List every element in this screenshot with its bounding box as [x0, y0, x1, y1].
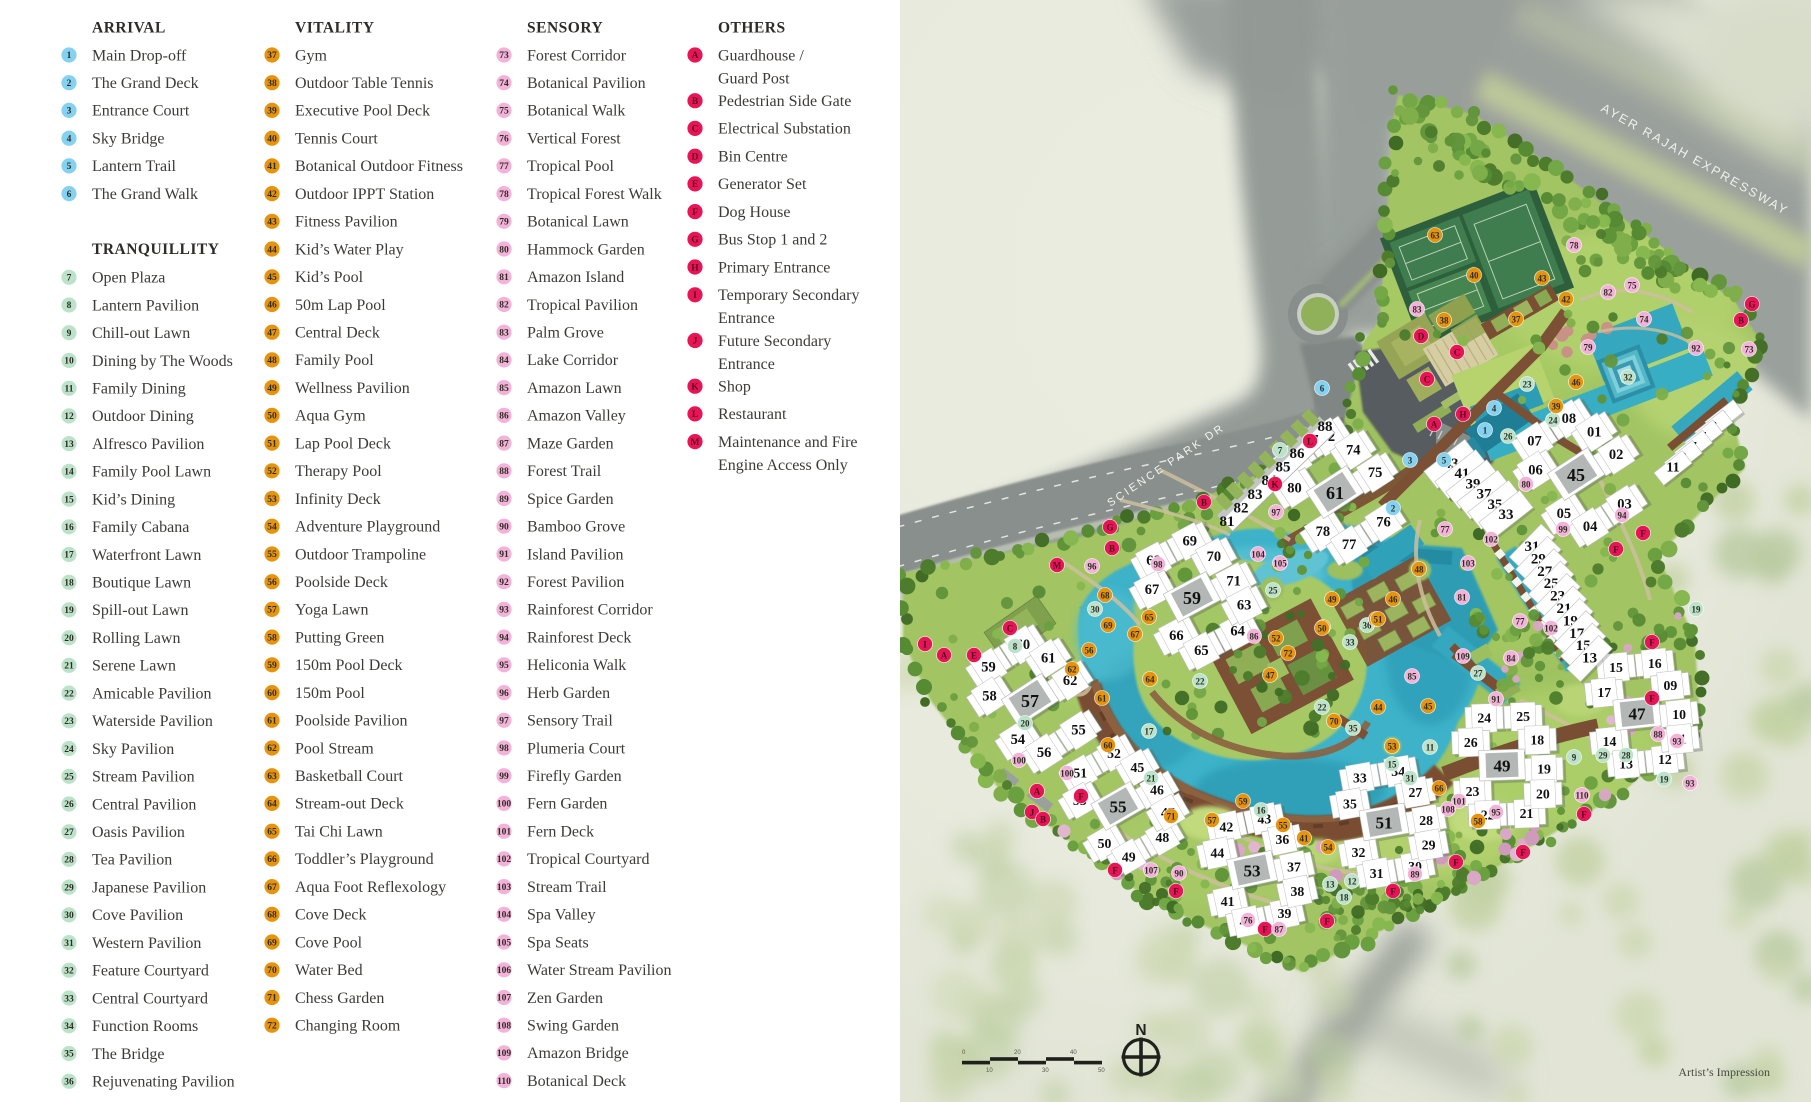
svg-text:Sensory Trail: Sensory Trail — [527, 713, 613, 730]
svg-text:53: 53 — [267, 495, 277, 505]
svg-text:G: G — [691, 236, 699, 246]
svg-text:10: 10 — [64, 357, 74, 367]
svg-text:65: 65 — [1194, 643, 1209, 659]
svg-text:Aqua Foot Reflexology: Aqua Foot Reflexology — [295, 879, 446, 896]
svg-text:A: A — [941, 651, 948, 661]
svg-text:94: 94 — [499, 633, 509, 643]
svg-text:68: 68 — [1101, 591, 1111, 601]
svg-text:92: 92 — [499, 578, 509, 588]
svg-text:ARRIVAL: ARRIVAL — [92, 20, 166, 37]
svg-text:47: 47 — [267, 328, 277, 338]
svg-text:29: 29 — [1599, 751, 1609, 761]
svg-text:19: 19 — [1660, 775, 1670, 785]
svg-text:Function Rooms: Function Rooms — [92, 1018, 198, 1035]
svg-text:47: 47 — [1628, 704, 1646, 723]
svg-text:17: 17 — [1145, 727, 1155, 737]
svg-text:Botanical Pavilion: Botanical Pavilion — [527, 75, 646, 92]
svg-text:Changing Room: Changing Room — [295, 1018, 401, 1035]
svg-text:Future Secondary: Future Secondary — [718, 333, 831, 350]
svg-text:81: 81 — [499, 273, 509, 283]
svg-text:B: B — [1040, 815, 1046, 825]
svg-text:6: 6 — [67, 190, 72, 200]
svg-text:63: 63 — [1237, 598, 1252, 614]
svg-text:21: 21 — [1520, 806, 1534, 821]
svg-text:40: 40 — [267, 134, 277, 144]
svg-text:61: 61 — [267, 717, 277, 727]
svg-text:J: J — [693, 337, 698, 347]
svg-text:109: 109 — [497, 1049, 512, 1059]
svg-text:59: 59 — [1239, 797, 1249, 807]
svg-text:Tropical Pavilion: Tropical Pavilion — [527, 297, 638, 314]
svg-text:C: C — [692, 125, 699, 135]
svg-text:33: 33 — [1353, 771, 1367, 786]
svg-text:61: 61 — [1326, 483, 1344, 503]
svg-text:20: 20 — [1014, 1050, 1021, 1056]
svg-text:37: 37 — [267, 51, 277, 61]
svg-text:Pedestrian Side Gate: Pedestrian Side Gate — [718, 93, 851, 110]
svg-text:Kid’s Water Play: Kid’s Water Play — [295, 241, 404, 258]
svg-text:Putting Green: Putting Green — [295, 629, 384, 646]
svg-text:J: J — [1030, 808, 1035, 818]
svg-text:56: 56 — [1085, 646, 1095, 656]
svg-text:81: 81 — [1458, 593, 1468, 603]
svg-text:11: 11 — [1426, 743, 1435, 753]
svg-text:84: 84 — [499, 356, 509, 366]
svg-text:29: 29 — [1422, 838, 1436, 853]
svg-text:Hammock Garden: Hammock Garden — [527, 241, 645, 258]
svg-text:1: 1 — [1483, 426, 1488, 436]
svg-text:I: I — [923, 640, 927, 650]
svg-text:43: 43 — [1538, 274, 1548, 284]
svg-text:95: 95 — [1492, 808, 1502, 818]
svg-text:B: B — [1738, 316, 1744, 326]
svg-text:69: 69 — [1182, 534, 1197, 550]
svg-text:71: 71 — [1226, 574, 1241, 590]
svg-text:55: 55 — [1279, 821, 1289, 831]
svg-text:41: 41 — [267, 162, 277, 172]
svg-text:Chill-out Lawn: Chill-out Lawn — [92, 325, 190, 342]
svg-text:55: 55 — [1071, 723, 1086, 739]
svg-text:Firefly Garden: Firefly Garden — [527, 768, 622, 785]
svg-text:Cove Pool: Cove Pool — [295, 934, 363, 951]
svg-text:11: 11 — [1666, 461, 1679, 476]
svg-text:100: 100 — [1012, 756, 1026, 766]
svg-text:32: 32 — [1352, 845, 1366, 860]
svg-text:Dining by The Woods: Dining by The Woods — [92, 353, 233, 370]
svg-text:Family Pool: Family Pool — [295, 352, 374, 369]
svg-text:15: 15 — [64, 495, 74, 505]
svg-text:8: 8 — [1013, 642, 1018, 652]
svg-text:Cove Deck: Cove Deck — [295, 907, 367, 924]
svg-text:53: 53 — [1388, 742, 1398, 752]
svg-text:39: 39 — [267, 107, 277, 117]
svg-text:G: G — [1106, 523, 1113, 533]
svg-text:102: 102 — [1484, 535, 1498, 545]
svg-text:61: 61 — [1041, 650, 1056, 666]
svg-text:Yoga Lawn: Yoga Lawn — [295, 602, 368, 619]
svg-text:Toddler’s Playground: Toddler’s Playground — [295, 851, 434, 868]
svg-text:18: 18 — [1530, 733, 1544, 748]
svg-text:Guardhouse /: Guardhouse / — [718, 47, 804, 64]
svg-text:104: 104 — [1251, 550, 1265, 560]
svg-text:109: 109 — [1456, 652, 1470, 662]
svg-text:Cove Pavilion: Cove Pavilion — [92, 907, 183, 924]
svg-text:42: 42 — [1562, 295, 1572, 305]
svg-text:Therapy Pool: Therapy Pool — [295, 463, 382, 480]
svg-text:57: 57 — [1021, 691, 1039, 711]
svg-text:93: 93 — [499, 606, 509, 616]
svg-text:17: 17 — [64, 551, 74, 561]
svg-text:43: 43 — [267, 218, 277, 228]
svg-text:75: 75 — [499, 107, 509, 117]
svg-text:64: 64 — [267, 800, 277, 810]
svg-text:05: 05 — [1557, 506, 1572, 522]
svg-text:102: 102 — [1544, 624, 1558, 634]
svg-text:100: 100 — [497, 800, 512, 810]
svg-text:58: 58 — [982, 688, 997, 704]
svg-text:A: A — [1431, 420, 1438, 430]
svg-text:27: 27 — [1409, 785, 1423, 800]
svg-text:65: 65 — [267, 827, 277, 837]
svg-text:Bus Stop 1 and 2: Bus Stop 1 and 2 — [718, 232, 827, 249]
svg-text:107: 107 — [1144, 866, 1158, 876]
svg-text:59: 59 — [1183, 588, 1201, 608]
svg-text:Tai Chi Lawn: Tai Chi Lawn — [295, 824, 383, 841]
svg-text:96: 96 — [1088, 562, 1098, 572]
svg-text:F: F — [692, 208, 698, 218]
svg-text:Amazon Lawn: Amazon Lawn — [527, 380, 622, 397]
svg-text:Japanese Pavilion: Japanese Pavilion — [92, 879, 206, 896]
svg-text:Poolside Pavilion: Poolside Pavilion — [295, 713, 407, 730]
svg-text:Forest Corridor: Forest Corridor — [527, 47, 627, 64]
svg-text:C: C — [1454, 348, 1461, 358]
svg-text:34: 34 — [64, 1022, 74, 1032]
svg-text:Aqua Gym: Aqua Gym — [295, 408, 366, 425]
svg-text:75: 75 — [1368, 465, 1383, 481]
svg-text:102: 102 — [497, 855, 512, 865]
svg-text:84: 84 — [1507, 654, 1517, 664]
svg-text:Dog House: Dog House — [718, 204, 790, 221]
svg-text:G: G — [1748, 300, 1755, 310]
svg-text:Tropical Courtyard: Tropical Courtyard — [527, 851, 650, 868]
svg-text:64: 64 — [1230, 624, 1245, 640]
svg-text:57: 57 — [267, 606, 277, 616]
svg-text:The Grand Deck: The Grand Deck — [92, 75, 199, 92]
svg-text:17: 17 — [1597, 685, 1611, 700]
svg-text:21: 21 — [64, 662, 74, 672]
svg-text:71: 71 — [1167, 812, 1177, 822]
svg-text:51: 51 — [1374, 615, 1384, 625]
svg-text:85: 85 — [499, 384, 509, 394]
svg-text:Generator Set: Generator Set — [718, 176, 807, 193]
svg-text:H: H — [1459, 410, 1466, 420]
svg-text:89: 89 — [1411, 870, 1421, 880]
svg-text:85: 85 — [1408, 672, 1418, 682]
svg-text:93: 93 — [1686, 779, 1696, 789]
svg-text:M: M — [691, 438, 700, 448]
svg-text:23: 23 — [1466, 784, 1480, 799]
svg-text:35: 35 — [1349, 724, 1359, 734]
svg-text:Executive Pool Deck: Executive Pool Deck — [295, 103, 430, 120]
svg-text:49: 49 — [267, 384, 277, 394]
svg-text:37: 37 — [1287, 859, 1301, 874]
svg-text:Kid’s Dining: Kid’s Dining — [92, 491, 175, 508]
svg-text:2: 2 — [67, 79, 72, 89]
svg-text:83: 83 — [1248, 487, 1263, 503]
svg-text:97: 97 — [1272, 508, 1282, 518]
svg-text:Gym: Gym — [295, 47, 328, 64]
svg-text:15: 15 — [1609, 660, 1623, 675]
svg-text:27: 27 — [64, 828, 74, 838]
svg-text:81: 81 — [1220, 514, 1235, 530]
svg-text:16: 16 — [64, 523, 74, 533]
svg-text:94: 94 — [1618, 511, 1628, 521]
svg-text:74: 74 — [1346, 442, 1361, 458]
svg-text:Rainforest Deck: Rainforest Deck — [527, 629, 631, 646]
svg-text:E: E — [692, 180, 698, 190]
svg-text:30: 30 — [1091, 605, 1101, 615]
svg-text:Boutique Lawn: Boutique Lawn — [92, 575, 191, 592]
svg-text:5: 5 — [67, 162, 72, 172]
svg-text:Stream Trail: Stream Trail — [527, 879, 607, 896]
svg-text:92: 92 — [1692, 344, 1702, 354]
svg-text:45: 45 — [1424, 702, 1434, 712]
svg-text:72: 72 — [267, 1021, 277, 1031]
svg-text:16: 16 — [1648, 656, 1662, 671]
svg-text:44: 44 — [1374, 703, 1384, 713]
svg-text:25: 25 — [1516, 709, 1530, 724]
svg-text:H: H — [691, 263, 699, 273]
svg-text:Forest Trail: Forest Trail — [527, 463, 602, 480]
svg-text:4: 4 — [1492, 404, 1497, 414]
svg-text:Outdoor IPPT Station: Outdoor IPPT Station — [295, 186, 434, 203]
svg-text:82: 82 — [499, 301, 509, 311]
svg-text:9: 9 — [1572, 753, 1577, 763]
svg-text:28: 28 — [1419, 813, 1433, 828]
svg-text:105: 105 — [1273, 559, 1287, 569]
svg-text:95: 95 — [499, 661, 509, 671]
svg-text:83: 83 — [499, 328, 509, 338]
svg-text:38: 38 — [1290, 884, 1304, 899]
svg-text:9: 9 — [67, 329, 72, 339]
svg-text:103: 103 — [497, 883, 512, 893]
svg-text:Spa Seats: Spa Seats — [527, 934, 589, 951]
svg-text:30: 30 — [1042, 1068, 1049, 1074]
svg-text:F: F — [1453, 858, 1459, 868]
svg-text:23: 23 — [1523, 380, 1533, 390]
svg-text:86: 86 — [499, 412, 509, 422]
svg-text:09: 09 — [1664, 678, 1678, 693]
svg-text:72: 72 — [1284, 649, 1294, 659]
svg-text:66: 66 — [1169, 628, 1184, 644]
svg-text:24: 24 — [64, 745, 74, 755]
svg-text:25: 25 — [64, 773, 74, 783]
svg-text:79: 79 — [1584, 343, 1594, 353]
svg-text:20: 20 — [64, 634, 74, 644]
svg-text:78: 78 — [1316, 524, 1331, 540]
svg-text:F: F — [1262, 925, 1268, 935]
svg-text:F: F — [1649, 694, 1655, 704]
svg-text:80: 80 — [1522, 480, 1532, 490]
svg-text:47: 47 — [1266, 671, 1276, 681]
svg-text:89: 89 — [499, 495, 509, 505]
svg-text:68: 68 — [267, 911, 277, 921]
svg-text:56: 56 — [1037, 745, 1052, 761]
svg-text:Amazon Valley: Amazon Valley — [527, 408, 626, 425]
svg-text:59: 59 — [981, 659, 996, 675]
svg-text:110: 110 — [1575, 791, 1589, 801]
svg-text:B: B — [1109, 544, 1115, 554]
svg-text:Plumeria Court: Plumeria Court — [527, 740, 626, 757]
svg-text:51: 51 — [1375, 813, 1392, 832]
svg-text:106: 106 — [497, 966, 512, 976]
svg-text:Tropical Forest Walk: Tropical Forest Walk — [527, 186, 662, 203]
svg-text:SENSORY: SENSORY — [527, 20, 603, 37]
svg-text:15: 15 — [1388, 760, 1398, 770]
svg-text:Electrical Substation: Electrical Substation — [718, 121, 851, 138]
svg-text:65: 65 — [1145, 613, 1155, 623]
svg-text:12: 12 — [1348, 877, 1358, 887]
svg-text:F: F — [1112, 866, 1118, 876]
svg-text:Outdoor Dining: Outdoor Dining — [92, 408, 194, 425]
svg-text:7: 7 — [1278, 446, 1283, 456]
svg-text:Amicable Pavilion: Amicable Pavilion — [92, 685, 212, 702]
svg-text:49: 49 — [1122, 849, 1136, 864]
svg-text:110: 110 — [497, 1077, 511, 1087]
svg-text:25: 25 — [1269, 586, 1279, 596]
svg-text:97: 97 — [499, 717, 509, 727]
svg-text:Water Stream Pavilion: Water Stream Pavilion — [527, 962, 671, 979]
svg-text:18: 18 — [64, 579, 74, 589]
svg-text:104: 104 — [497, 911, 512, 921]
svg-text:C: C — [1424, 375, 1431, 385]
svg-text:22: 22 — [1196, 677, 1206, 687]
svg-text:60: 60 — [1104, 741, 1114, 751]
svg-text:85: 85 — [1276, 460, 1291, 476]
svg-text:61: 61 — [1098, 694, 1108, 704]
svg-text:58: 58 — [1474, 817, 1484, 827]
svg-text:06: 06 — [1528, 462, 1543, 478]
svg-text:L: L — [1307, 437, 1313, 447]
svg-text:8: 8 — [67, 301, 72, 311]
svg-text:74: 74 — [1640, 315, 1650, 325]
svg-text:23: 23 — [64, 717, 74, 727]
svg-text:Stream Pavilion: Stream Pavilion — [92, 769, 195, 786]
svg-text:Lantern Pavilion: Lantern Pavilion — [92, 297, 199, 314]
svg-text:Lap Pool Deck: Lap Pool Deck — [295, 435, 391, 452]
svg-text:01: 01 — [1587, 424, 1602, 440]
svg-text:Fern Deck: Fern Deck — [527, 824, 594, 841]
svg-text:91: 91 — [1492, 695, 1502, 705]
svg-text:Temporary Secondary: Temporary Secondary — [718, 287, 860, 304]
svg-text:50: 50 — [1318, 624, 1328, 634]
svg-text:10: 10 — [986, 1068, 993, 1074]
svg-text:22: 22 — [64, 689, 74, 699]
svg-text:Outdoor Table Tennis: Outdoor Table Tennis — [295, 75, 433, 92]
svg-text:46: 46 — [1389, 595, 1399, 605]
svg-text:51: 51 — [1073, 765, 1087, 780]
svg-text:Botanical Deck: Botanical Deck — [527, 1073, 626, 1090]
svg-text:Waterfront Lawn: Waterfront Lawn — [92, 547, 201, 564]
svg-text:Serene Lawn: Serene Lawn — [92, 658, 176, 675]
svg-text:77: 77 — [1516, 617, 1526, 627]
svg-text:103: 103 — [1461, 559, 1475, 569]
svg-text:3: 3 — [1408, 456, 1413, 466]
svg-text:Family Pool Lawn: Family Pool Lawn — [92, 464, 211, 481]
svg-text:50: 50 — [1098, 1068, 1105, 1074]
svg-text:Waterside Pavilion: Waterside Pavilion — [92, 713, 213, 730]
svg-text:62: 62 — [1068, 665, 1078, 675]
svg-text:14: 14 — [64, 468, 74, 478]
svg-text:63: 63 — [267, 772, 277, 782]
svg-text:Artist’s Impression: Artist’s Impression — [1678, 1065, 1770, 1079]
svg-text:82: 82 — [1604, 288, 1614, 298]
svg-text:99: 99 — [499, 772, 509, 782]
svg-text:Island Pavilion: Island Pavilion — [527, 546, 623, 563]
svg-text:D: D — [692, 152, 699, 162]
svg-text:C: C — [1007, 624, 1014, 634]
svg-text:108: 108 — [497, 1021, 512, 1031]
svg-text:Tea Pavilion: Tea Pavilion — [92, 852, 172, 869]
svg-text:Family Dining: Family Dining — [92, 381, 186, 398]
svg-text:150m Pool Deck: 150m Pool Deck — [295, 657, 403, 674]
svg-text:13: 13 — [1582, 651, 1597, 667]
svg-text:A: A — [692, 51, 699, 61]
svg-text:75: 75 — [1628, 281, 1638, 291]
svg-text:38: 38 — [1440, 316, 1450, 326]
svg-text:60: 60 — [267, 689, 277, 699]
svg-text:F: F — [1324, 917, 1330, 927]
svg-text:51: 51 — [267, 439, 277, 449]
svg-text:87: 87 — [1275, 925, 1285, 935]
svg-text:28: 28 — [64, 856, 74, 866]
svg-text:35: 35 — [1343, 796, 1357, 811]
svg-text:79: 79 — [499, 218, 509, 228]
svg-text:Poolside Deck: Poolside Deck — [295, 574, 388, 591]
svg-text:36: 36 — [1275, 832, 1289, 847]
svg-text:49: 49 — [1328, 595, 1338, 605]
svg-text:45: 45 — [1567, 465, 1585, 485]
svg-text:91: 91 — [499, 550, 509, 560]
svg-text:73: 73 — [1745, 345, 1755, 355]
svg-text:20: 20 — [1021, 719, 1031, 729]
svg-text:100: 100 — [1060, 769, 1074, 779]
svg-text:Palm Grove: Palm Grove — [527, 325, 604, 342]
svg-text:87: 87 — [499, 439, 509, 449]
svg-text:27: 27 — [1474, 669, 1484, 679]
svg-text:Entrance: Entrance — [718, 356, 775, 373]
svg-text:Bamboo Grove: Bamboo Grove — [527, 519, 625, 536]
svg-text:48: 48 — [267, 356, 277, 366]
svg-text:86: 86 — [1250, 632, 1260, 642]
svg-text:37: 37 — [1512, 315, 1522, 325]
svg-text:80: 80 — [1287, 480, 1302, 496]
svg-text:71: 71 — [267, 994, 277, 1004]
svg-text:33: 33 — [1346, 638, 1356, 648]
svg-text:B: B — [692, 97, 699, 107]
svg-text:F: F — [1640, 529, 1646, 539]
svg-text:Herb Garden: Herb Garden — [527, 685, 610, 702]
svg-text:19: 19 — [64, 606, 74, 616]
svg-text:76: 76 — [499, 134, 509, 144]
svg-text:Main Drop-off: Main Drop-off — [92, 47, 187, 64]
svg-text:150m Pool: 150m Pool — [295, 685, 365, 702]
svg-text:67: 67 — [1131, 630, 1141, 640]
svg-text:Spill-out Lawn: Spill-out Lawn — [92, 602, 188, 619]
svg-text:Outdoor Trampoline: Outdoor Trampoline — [295, 546, 426, 563]
svg-text:49: 49 — [1493, 756, 1510, 775]
svg-text:53: 53 — [1243, 861, 1260, 880]
